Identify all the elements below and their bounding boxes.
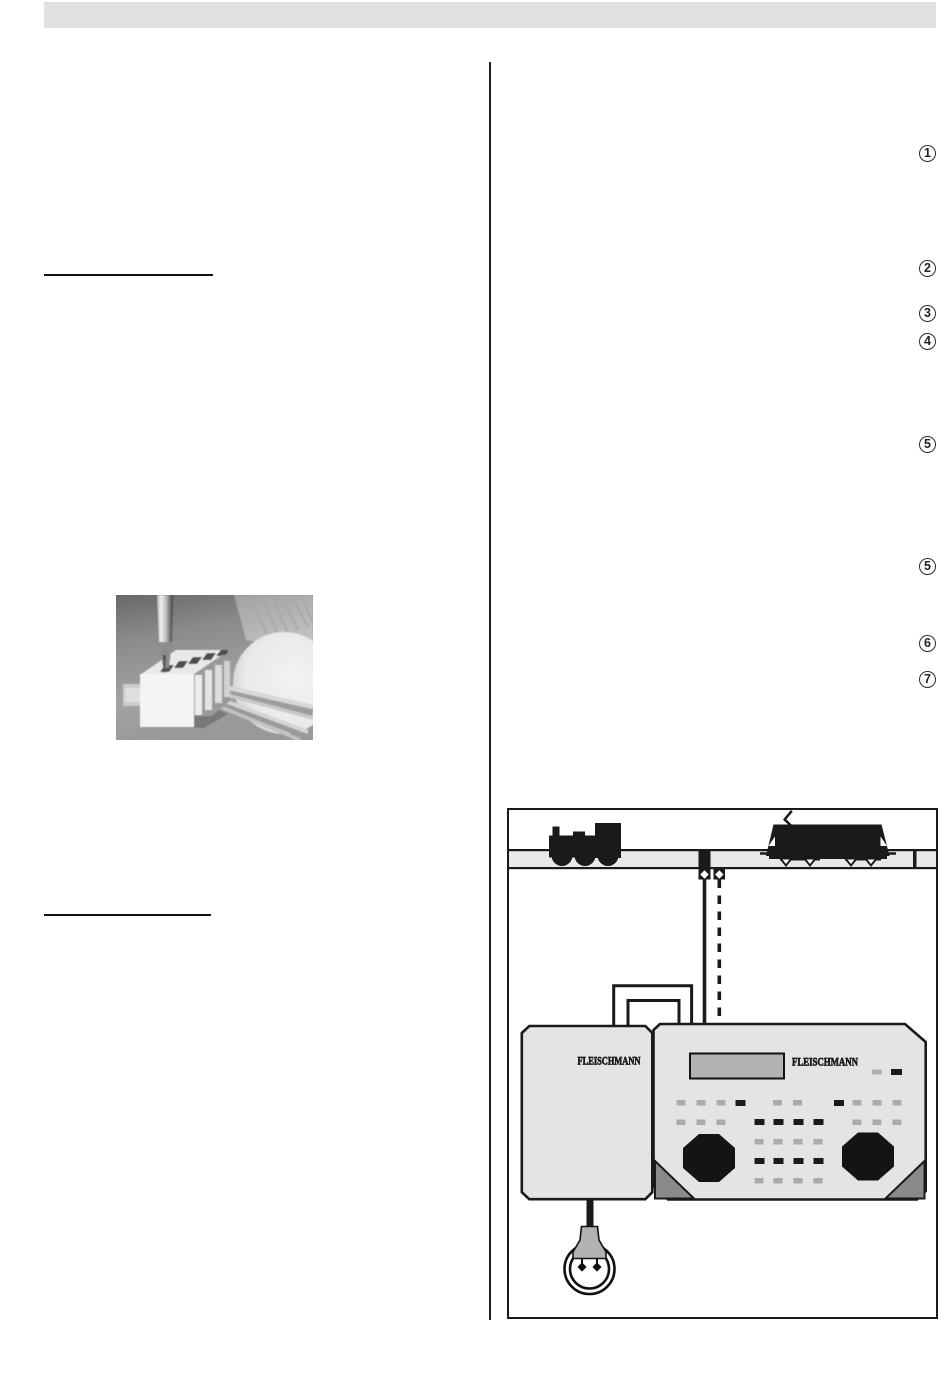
- svg-text:FLEISCHMANN: FLEISCHMANN: [578, 1054, 641, 1068]
- svg-text:FLEISCHMANN: FLEISCHMANN: [792, 1055, 858, 1069]
